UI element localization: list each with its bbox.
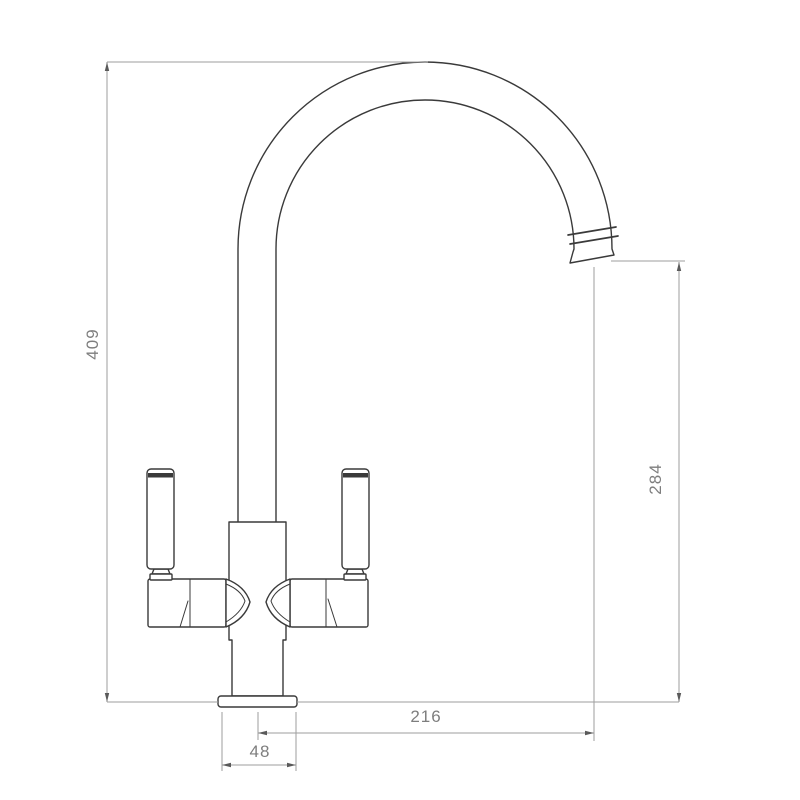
base-flange: [218, 696, 297, 707]
technical-drawing-svg: 409 284 216 48: [0, 0, 800, 800]
arrow-outlet-height-top: [677, 262, 681, 271]
arrow-spout-reach-right: [585, 731, 594, 735]
right-handle-neck: [346, 569, 364, 574]
arrow-overall-height-bottom: [105, 693, 109, 702]
label-spout-reach: 216: [410, 707, 441, 726]
right-handle-cap-band: [343, 473, 368, 478]
arrow-base-width-left: [222, 763, 231, 767]
label-outlet-height: 284: [646, 463, 665, 494]
left-handle-cap-band: [148, 473, 173, 478]
faucet-dimension-diagram: 409 284 216 48: [0, 0, 800, 800]
spout-gooseneck: [238, 62, 614, 524]
dimension-annotations: 409 284 216 48: [83, 62, 685, 771]
arrow-spout-reach-left: [258, 731, 267, 735]
label-base-width: 48: [250, 742, 271, 761]
right-handle-lever: [342, 469, 369, 569]
tap-outline: [147, 62, 618, 707]
label-overall-height: 409: [83, 328, 102, 359]
left-handle-ring: [150, 574, 172, 580]
arrow-overall-height-top: [105, 62, 109, 71]
arrow-base-width-right: [287, 763, 296, 767]
left-handle-neck: [152, 569, 170, 574]
left-handle-lever: [147, 469, 174, 569]
arrow-outlet-height-bottom: [677, 693, 681, 702]
right-handle-ring: [344, 574, 366, 580]
